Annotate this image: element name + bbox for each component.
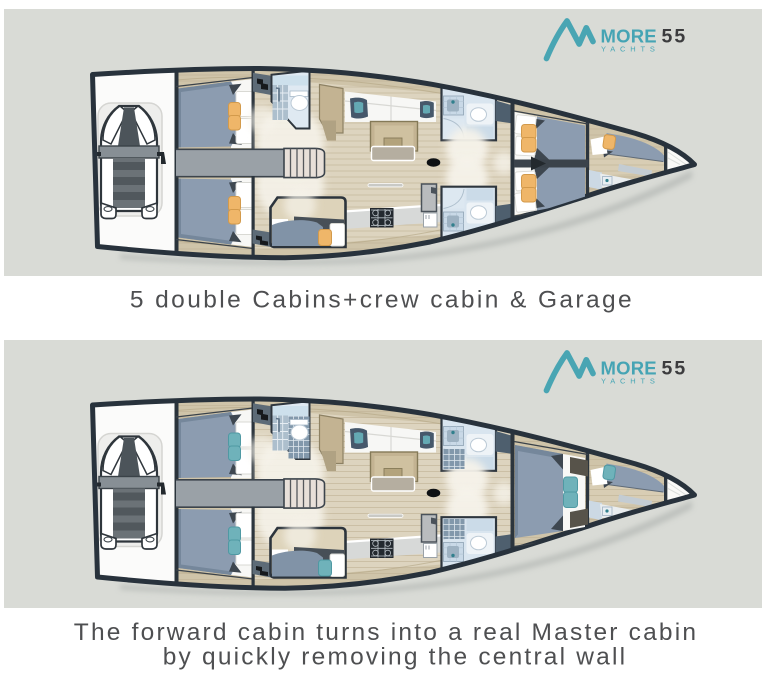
svg-text:by quickly removing the centra: by quickly removing the central wall [163,644,628,671]
svg-text:The forward cabin turns into a: The forward cabin turns into a real Mast… [74,619,698,646]
svg-text:5 double Cabins+crew cabin & G: 5 double Cabins+crew cabin & Garage [130,287,634,314]
